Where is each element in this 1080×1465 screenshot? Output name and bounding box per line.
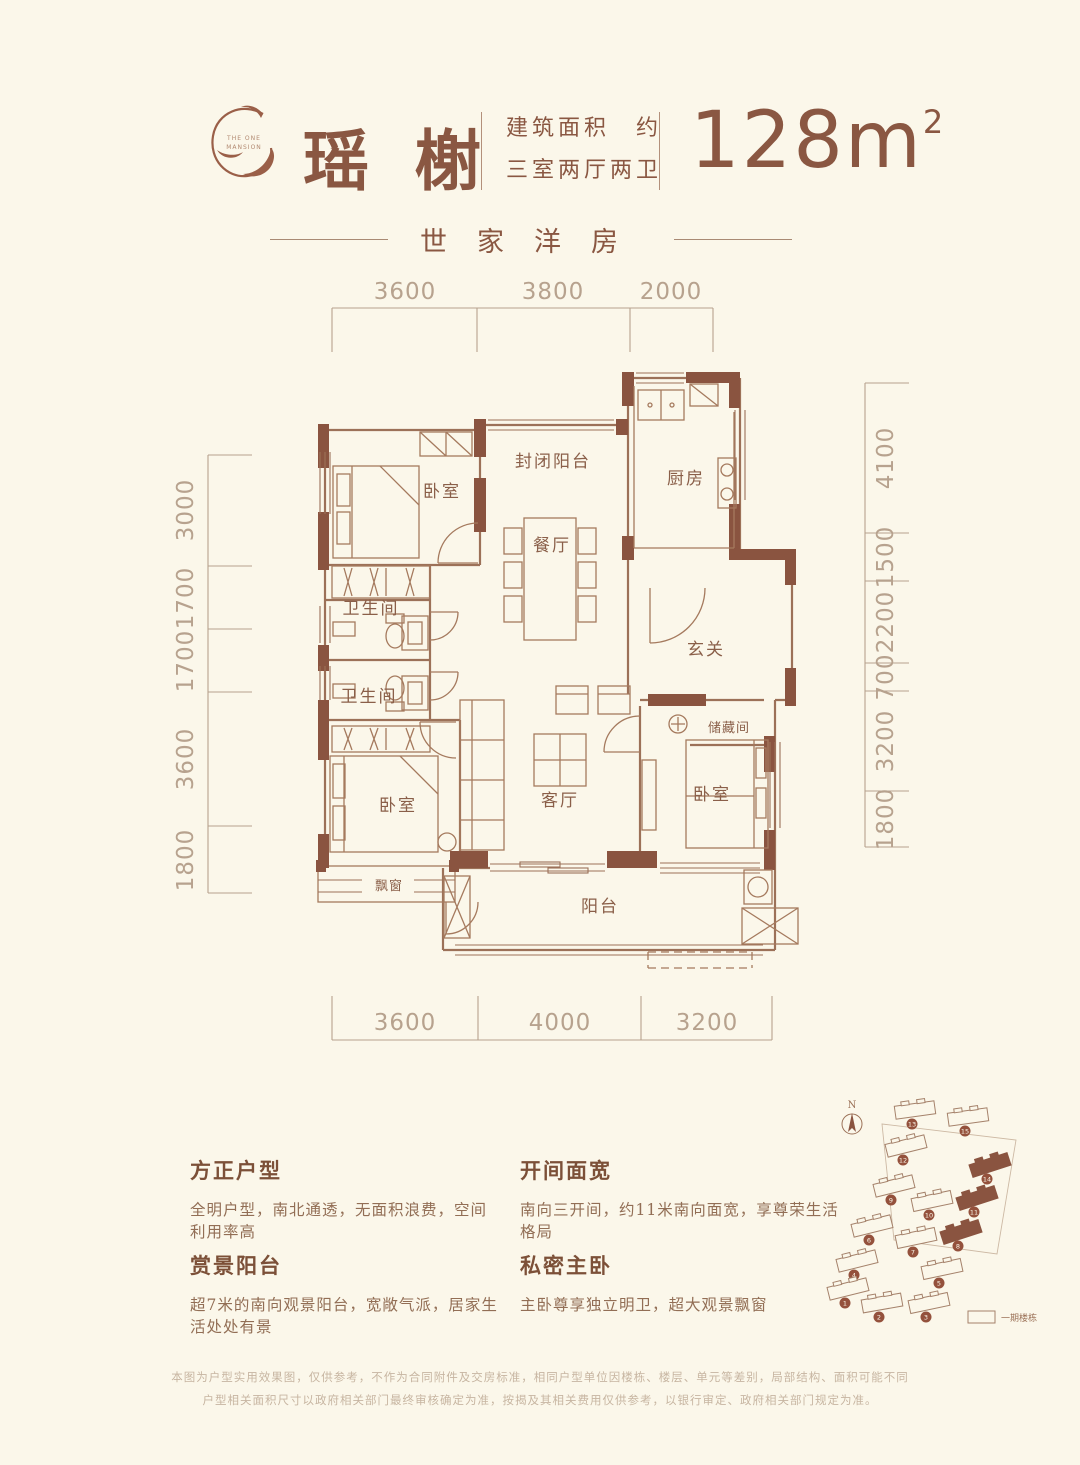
floorplan-drawing: 3600 3800 2000 3000 1700 1700 3600 1800 …: [150, 270, 1030, 1080]
spec-area-label: 建筑面积 约: [506, 108, 662, 150]
dimension-right: 4100 1500 2200 700 3200 1800: [865, 383, 909, 850]
sitemap-building: [910, 1187, 953, 1211]
room-label-bath-lower: 卫生间: [341, 687, 398, 707]
room-label-bedroom-right: 卧室: [693, 785, 731, 805]
subtitle-row: 世家洋房: [270, 220, 792, 259]
room-label-balcony: 阳台: [581, 897, 619, 917]
dim-top-1: 3600: [374, 279, 437, 305]
plan-doors: [420, 523, 705, 934]
dim-left-2: 1700: [173, 567, 199, 630]
dim-left-5: 1800: [173, 829, 199, 892]
sitemap-building: [872, 1171, 915, 1197]
room-label-bay-window: 飘窗: [375, 878, 403, 894]
header-divider-2: [659, 112, 660, 190]
dim-right-5: 3200: [873, 710, 899, 773]
sitemap-building: [826, 1274, 869, 1300]
dim-right-1: 4100: [873, 427, 899, 490]
feature-title: 开间面宽: [520, 1155, 840, 1185]
feature-bay-width: 开间面宽 南向三开间，约11米南向面宽，享尊荣生活格局: [520, 1155, 840, 1242]
feature-view-balcony: 赏景阳台 超7米的南向观景阳台，宽敞气派，居家生活处处有景: [190, 1250, 500, 1337]
disclaimer: 本图为户型实用效果图，仅供参考，不作为合同附件及交房标准，相同户型单位因楼栋、楼…: [0, 1366, 1080, 1412]
room-label-living: 客厅: [541, 791, 579, 811]
building-number: 14: [983, 1176, 991, 1184]
sitemap-building: [835, 1246, 878, 1272]
area-number: 128m: [690, 96, 923, 186]
brand-logo: THE ONE MANSION: [205, 98, 283, 198]
sitemap-building: [939, 1216, 982, 1244]
poster-page: THE ONE MANSION 瑶榭 建筑面积 约 三室两厅两卫 128m2 世…: [0, 0, 1080, 1465]
building-number: 2: [877, 1314, 881, 1322]
building-number: 5: [937, 1280, 941, 1288]
plan-title: 瑶榭: [303, 108, 527, 204]
sitemap-buildings: 131512149101167845123: [826, 1097, 1011, 1322]
building-number: 6: [867, 1237, 871, 1245]
dim-right-4: 700: [873, 654, 899, 701]
disclaimer-line-1: 本图为户型实用效果图，仅供参考，不作为合同附件及交房标准，相同户型单位因楼栋、楼…: [0, 1366, 1080, 1389]
disclaimer-line-2: 户型相关面积尺寸以政府相关部门最终审核确定为准，按揭及其相关费用仅供参考，以银行…: [0, 1389, 1080, 1412]
logo-caption-line2: MANSION: [226, 144, 262, 151]
building-number: 8: [956, 1243, 960, 1251]
feature-desc: 南向三开间，约11米南向面宽，享尊荣生活格局: [520, 1198, 840, 1242]
dimension-left: 3000 1700 1700 3600 1800: [173, 455, 252, 893]
room-label-storage: 储藏间: [708, 721, 750, 736]
building-number: 10: [925, 1212, 933, 1220]
building-number: 9: [889, 1197, 893, 1205]
subtitle-text: 世家洋房: [414, 220, 648, 259]
feature-desc: 主卧尊享独立明卫，超大观景飘窗: [520, 1293, 840, 1315]
building-number: 3: [924, 1314, 928, 1322]
feature-desc: 超7米的南向观景阳台，宽敞气派，居家生活处处有景: [190, 1293, 500, 1337]
feature-title: 方正户型: [190, 1155, 500, 1185]
sitemap-building: [884, 1131, 927, 1157]
dim-top-2: 3800: [522, 279, 585, 305]
building-number: 13: [908, 1121, 916, 1129]
feature-private-master: 私密主卧 主卧尊享独立明卫，超大观景飘窗: [520, 1250, 840, 1315]
sitemap-legend: 一期楼栋: [968, 1311, 1037, 1324]
sitemap-building: [850, 1211, 893, 1237]
sitemap-building: [947, 1104, 989, 1126]
dim-right-3: 2200: [873, 591, 899, 654]
dim-bottom-2: 4000: [529, 1010, 592, 1036]
dim-left-1: 3000: [173, 479, 199, 542]
subtitle-line-left: [270, 239, 388, 240]
building-number: 1: [843, 1300, 847, 1308]
dim-right-2: 1500: [873, 526, 899, 589]
dim-right-6: 1800: [873, 788, 899, 851]
room-label-kitchen: 厨房: [667, 469, 705, 489]
spec-room-label: 三室两厅两卫: [506, 150, 662, 192]
subtitle-line-right: [674, 239, 792, 240]
dim-bottom-3: 3200: [676, 1010, 739, 1036]
sitemap-building: [907, 1289, 950, 1313]
room-label-bedroom-top: 卧室: [423, 482, 461, 502]
room-label-enclosed-balcony: 封闭阳台: [515, 452, 591, 472]
area-value: 128m2: [690, 96, 945, 186]
room-label-foyer: 玄关: [687, 640, 725, 660]
room-label-dining: 餐厅: [533, 536, 571, 556]
room-label-bedroom-left: 卧室: [379, 796, 417, 816]
sitemap-building: [955, 1182, 998, 1210]
area-superscript: 2: [923, 103, 945, 141]
legend-label: 一期楼栋: [1001, 1312, 1037, 1324]
building-number: 7: [911, 1249, 915, 1257]
feature-title: 赏景阳台: [190, 1250, 500, 1280]
building-number: 15: [961, 1128, 969, 1136]
sitemap-building: [968, 1149, 1011, 1177]
legend-swatch: [968, 1311, 995, 1323]
sitemap-building: [894, 1097, 936, 1119]
sitemap-building: [861, 1290, 903, 1313]
sitemap: N 131512149101167845123 一期楼栋: [820, 1080, 1080, 1340]
dim-left-3: 1700: [173, 630, 199, 693]
dimension-top: 3600 3800 2000: [332, 279, 713, 352]
north-label: N: [848, 1100, 857, 1111]
north-compass-icon: N: [842, 1100, 862, 1134]
dim-left-4: 3600: [173, 728, 199, 791]
logo-caption-line1: THE ONE: [226, 135, 261, 142]
dim-top-3: 2000: [640, 279, 703, 305]
sitemap-building: [920, 1255, 963, 1279]
dimension-bottom: 3600 4000 3200: [332, 996, 772, 1040]
header-divider-1: [481, 112, 482, 190]
building-number: 11: [970, 1209, 978, 1217]
dim-bottom-1: 3600: [374, 1010, 437, 1036]
room-label-bath-upper: 卫生间: [343, 599, 400, 619]
building-number: 12: [899, 1157, 907, 1165]
feature-square-layout: 方正户型 全明户型，南北通透，无面积浪费，空间利用率高: [190, 1155, 500, 1242]
feature-title: 私密主卧: [520, 1250, 840, 1280]
feature-desc: 全明户型，南北通透，无面积浪费，空间利用率高: [190, 1198, 500, 1242]
